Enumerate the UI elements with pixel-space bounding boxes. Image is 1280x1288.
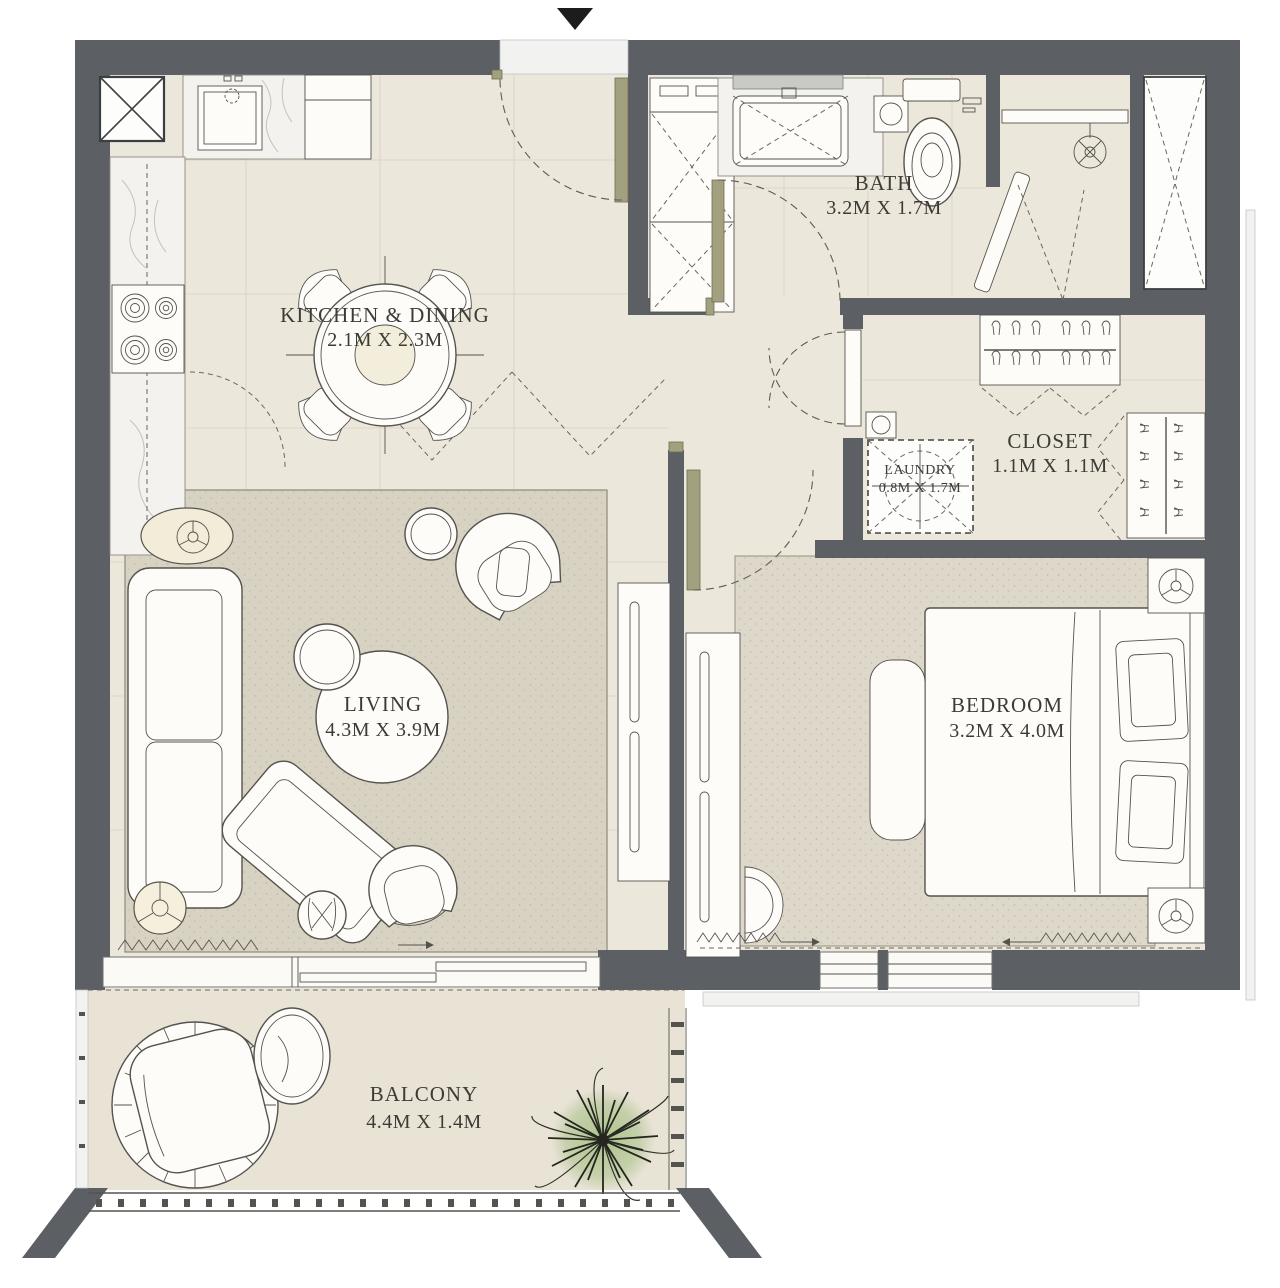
living-label: LIVING	[344, 692, 422, 716]
kitchen-dining-size: 2.1M X 2.3M	[327, 329, 443, 351]
side-table-oval	[141, 508, 233, 564]
bath-size: 3.2M X 1.7M	[826, 197, 942, 219]
bed	[925, 604, 1204, 898]
floor-plan: KITCHEN & DINING 2.1M X 2.3M BATH 3.2M X…	[0, 0, 1280, 1288]
kitchen-sink	[198, 76, 262, 150]
balcony-table	[254, 1008, 330, 1104]
bath-small-basin	[874, 96, 908, 132]
floor-plan-drawing: KITCHEN & DINING 2.1M X 2.3M BATH 3.2M X…	[0, 0, 1280, 1288]
closet-label: CLOSET	[1007, 429, 1092, 453]
bath-vanity	[718, 75, 883, 176]
balcony-size: 4.4M X 1.4M	[366, 1111, 482, 1133]
entry-arrow-icon	[557, 8, 593, 30]
nightstand-bottom	[1148, 888, 1205, 943]
balcony-lounge-chair	[112, 1022, 278, 1188]
bedroom-label: BEDROOM	[951, 693, 1063, 717]
bed-bench	[870, 660, 925, 840]
bedroom-size: 3.2M X 4.0M	[949, 720, 1065, 742]
tv-console	[618, 583, 670, 881]
living-size: 4.3M X 3.9M	[325, 719, 441, 741]
bath-label: BATH	[855, 171, 914, 195]
nightstand-top	[1148, 558, 1205, 613]
laundry-size: 0.8M X 1.7M	[879, 481, 962, 496]
duct-shaft-icon	[100, 77, 164, 141]
kitchen-dining-label: KITCHEN & DINING	[280, 303, 490, 327]
hall-dresser	[686, 633, 740, 957]
bedroom-windows	[820, 952, 992, 988]
dining-table	[286, 256, 484, 454]
balcony-label: BALCONY	[370, 1082, 479, 1106]
laundry-label: LAUNDRY	[884, 463, 955, 478]
closet-size: 1.1M X 1.1M	[992, 455, 1108, 477]
floor-lamp	[134, 882, 186, 934]
side-stool	[298, 891, 346, 939]
duct-shaft-right-icon	[1144, 77, 1206, 289]
stove	[112, 285, 184, 373]
